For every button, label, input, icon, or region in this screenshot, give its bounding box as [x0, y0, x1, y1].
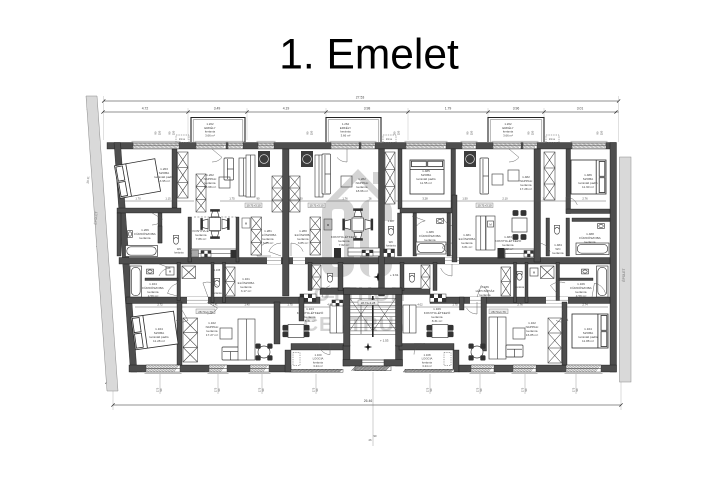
svg-text:3.01: 3.01 [577, 107, 584, 111]
svg-text:28.73+1.76: 28.73+1.76 [491, 310, 506, 314]
svg-text:90: 90 [257, 197, 260, 201]
svg-text:4.02: 4.02 [417, 303, 423, 307]
svg-text:2.76: 2.76 [582, 197, 588, 201]
svg-text:150: 150 [396, 130, 400, 135]
svg-text:20.11: 20.11 [86, 176, 91, 184]
svg-text:28.73+3.28: 28.73+3.28 [361, 301, 376, 305]
svg-text:76: 76 [369, 197, 372, 201]
svg-text:150: 150 [157, 130, 161, 135]
svg-text:175: 175 [156, 387, 160, 392]
svg-text:1.79: 1.79 [445, 107, 452, 111]
svg-text:1.165: 1.165 [214, 268, 221, 272]
svg-text:10.71+3.10: 10.71+3.10 [309, 204, 324, 208]
svg-text:1.75: 1.75 [229, 197, 235, 201]
svg-text:28.73+1.76: 28.73+1.76 [198, 310, 213, 314]
svg-text:2.76: 2.76 [517, 303, 523, 307]
svg-text:1.76: 1.76 [342, 197, 348, 201]
svg-text:175: 175 [214, 387, 218, 392]
svg-text:150: 150 [309, 130, 313, 135]
svg-text:1. Emelet: 1. Emelet [279, 32, 459, 79]
svg-text:ÉPÜLET: ÉPÜLET [621, 268, 626, 281]
svg-text:2.72: 2.72 [157, 303, 163, 307]
svg-text:2.74: 2.74 [582, 303, 588, 307]
svg-text:175: 175 [521, 387, 525, 392]
svg-text:175: 175 [476, 387, 480, 392]
svg-text:1.487: 1.487 [388, 219, 395, 223]
svg-text:150: 150 [599, 130, 603, 135]
svg-text:1.40: 1.40 [244, 303, 250, 307]
svg-text:175: 175 [312, 387, 316, 392]
svg-text:3.96: 3.96 [513, 107, 520, 111]
svg-text:1.70: 1.70 [135, 197, 141, 201]
svg-text:4.72: 4.72 [142, 107, 149, 111]
svg-text:26.46: 26.46 [364, 399, 373, 403]
svg-text:+ 3.61: + 3.61 [390, 273, 399, 277]
svg-text:2.10: 2.10 [502, 197, 508, 201]
svg-text:1.15: 1.15 [165, 197, 171, 201]
svg-text:3.20: 3.20 [297, 197, 303, 201]
svg-text:150: 150 [469, 130, 473, 135]
svg-text:+ 1.53: + 1.53 [380, 339, 389, 343]
svg-text:175: 175 [572, 387, 576, 392]
svg-text:150: 150 [171, 130, 175, 135]
svg-text:150: 150 [530, 130, 534, 135]
svg-text:26: 26 [368, 438, 372, 442]
svg-text:4.19: 4.19 [283, 107, 290, 111]
svg-text:3.98: 3.98 [364, 107, 371, 111]
svg-text:kerámia: kerámia [212, 291, 222, 295]
svg-text:1.75: 1.75 [452, 303, 458, 307]
svg-text:27.53: 27.53 [356, 96, 365, 100]
svg-text:klíma: klíma [179, 137, 186, 141]
svg-text:175: 175 [258, 387, 262, 392]
svg-text:1.75: 1.75 [287, 303, 293, 307]
svg-text:kerámia: kerámia [515, 285, 525, 289]
svg-text:1.41: 1.41 [212, 303, 218, 307]
svg-text:klíma: klíma [386, 137, 393, 141]
svg-text:klíma: klíma [549, 137, 556, 141]
svg-text:3.49: 3.49 [214, 107, 221, 111]
svg-text:175: 175 [426, 387, 430, 392]
svg-text:10.71+3.10: 10.71+3.10 [246, 204, 261, 208]
svg-text:3.28: 3.28 [422, 197, 428, 201]
svg-text:ÉPÜLET: ÉPÜLET [93, 211, 99, 225]
svg-text:1.50: 1.50 [462, 197, 468, 201]
svg-text:10.71+3.10: 10.71+3.10 [477, 204, 492, 208]
